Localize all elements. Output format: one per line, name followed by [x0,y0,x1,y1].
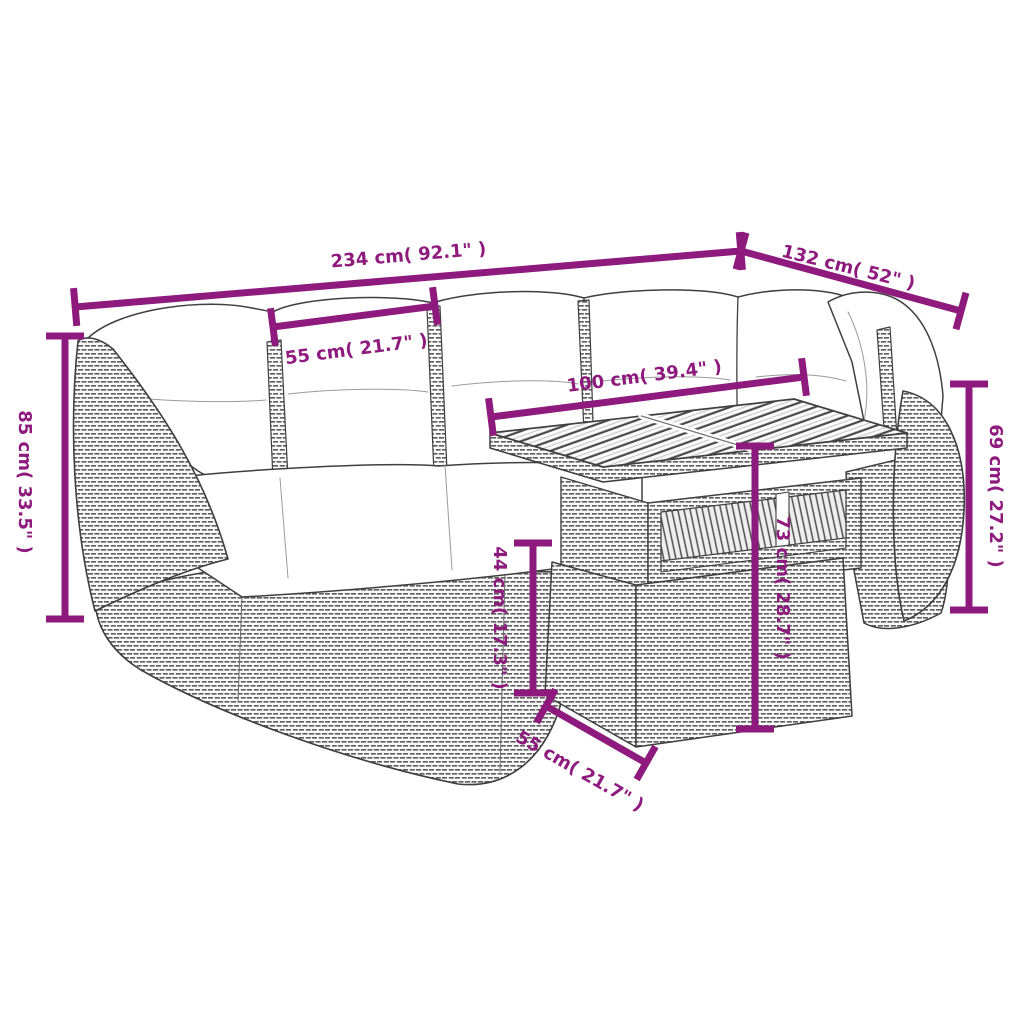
dim-total-width-label: 234 cm( 92.1" ) [330,239,487,273]
dim-table-height-label: 73 cm( 28.7" ) [772,516,793,660]
dim-seat-height-label: 44 cm( 17.3" ) [489,546,510,690]
dim-back-height-label: 69 cm( 27.2" ) [985,424,1006,568]
dim-seat-width-cap [271,308,276,346]
dim-table-width-cap [802,358,807,396]
diagram-canvas: 234 cm( 92.1" ) 132 cm( 52" ) 55 cm( 21.… [0,0,1024,1024]
furniture-illustration [74,290,965,785]
ottoman-left-face [545,562,636,747]
dim-seat-width-cap [433,287,438,325]
dim-total-depth-cap [956,293,966,330]
dim-table-width-cap [489,398,494,436]
right-armrest [893,391,964,621]
ottoman-front-face [636,558,852,747]
dim-total-width-cap [74,288,77,326]
dim-sofa-height-label: 85 cm( 33.5" ) [14,410,35,554]
product-dimension-diagram: 234 cm( 92.1" ) 132 cm( 52" ) 55 cm( 21.… [0,0,1024,1024]
